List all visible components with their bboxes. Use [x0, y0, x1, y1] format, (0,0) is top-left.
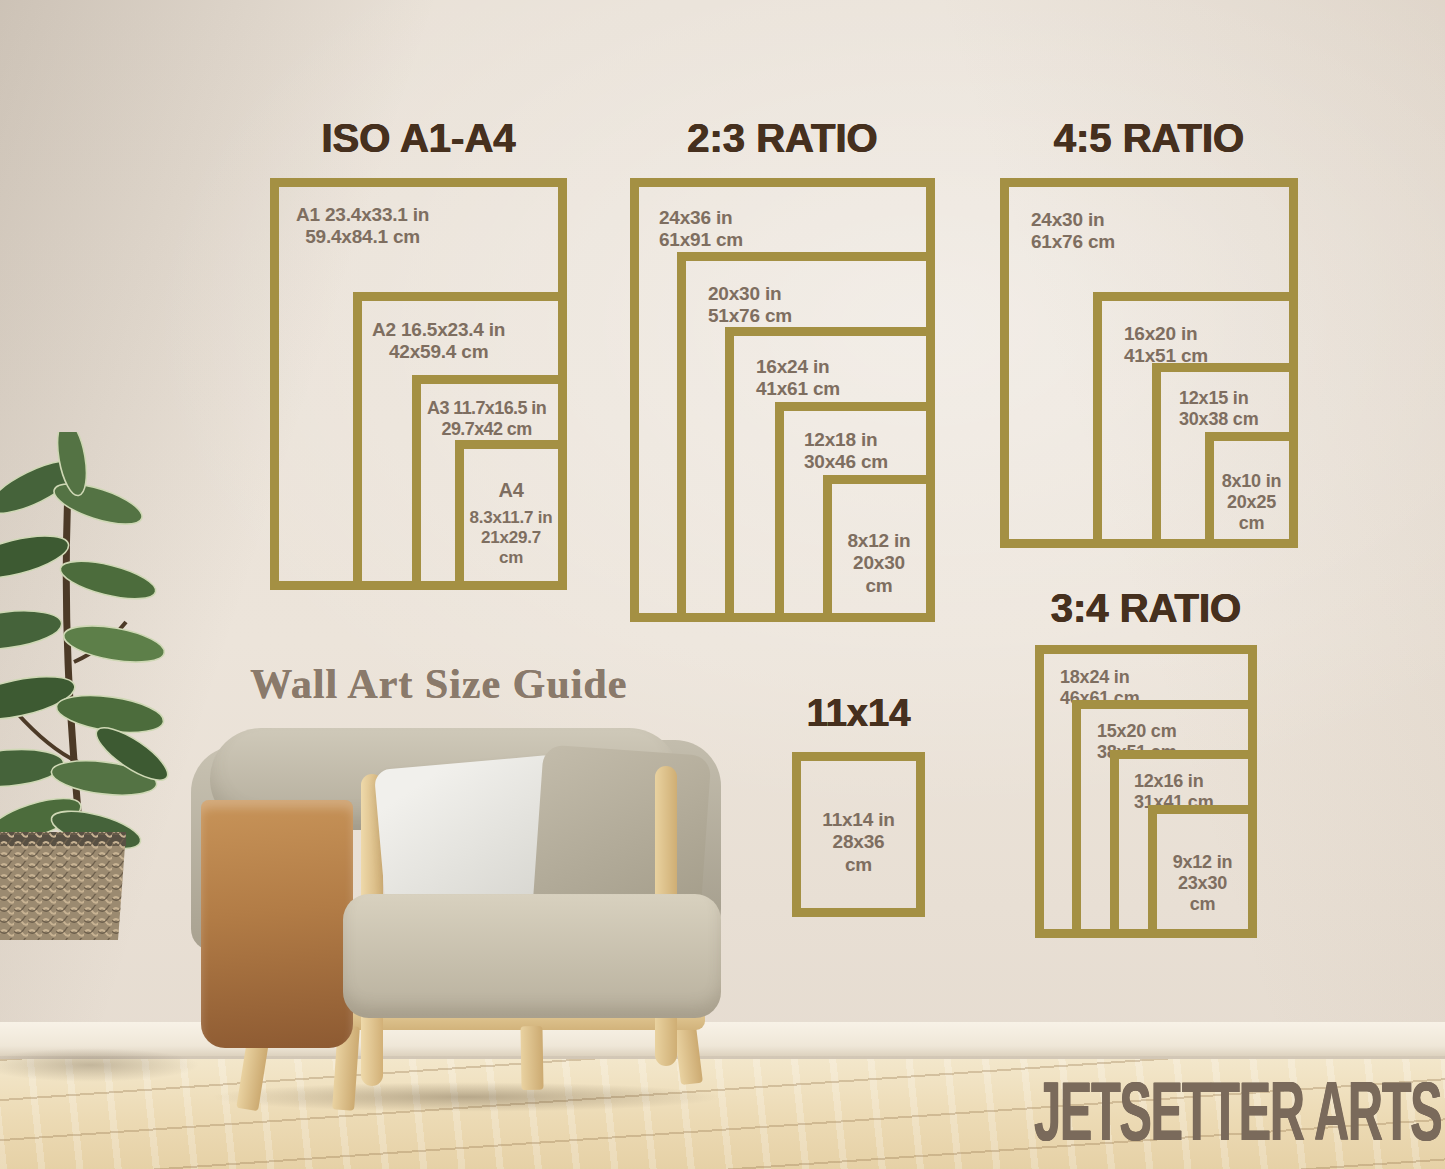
guide-title: Wall Art Size Guide — [250, 660, 627, 708]
frame-8x10: 8x10 in 20x25 cm — [1205, 432, 1298, 548]
frame-a4: A4 8.3x11.7 in 21x29.7 cm — [455, 440, 567, 590]
size-label-line: 12x16 in — [1134, 771, 1213, 792]
size-label-line: cm — [1157, 894, 1248, 915]
size-label-line: cm — [464, 548, 558, 568]
size-label: 8x12 in 20x30 cm — [832, 530, 926, 597]
size-label-line: 30x46 cm — [804, 451, 888, 473]
size-label-line: 8x10 in — [1214, 471, 1289, 492]
chair-leather-panel — [201, 800, 353, 1048]
size-label: 12x18 in 30x46 cm — [804, 429, 888, 474]
size-label: A1 23.4x33.1 in 59.4x84.1 cm — [296, 204, 429, 249]
size-label-line: 24x30 in — [1031, 209, 1115, 231]
wall-art-size-guide-photo: ISO A1-A4 A1 23.4x33.1 in 59.4x84.1 cm A… — [0, 0, 1445, 1169]
size-label-line: 8x12 in — [832, 530, 926, 552]
frame-9x12: 9x12 in 23x30 cm — [1148, 805, 1257, 938]
size-label-line: 61x76 cm — [1031, 231, 1115, 253]
section-title: 3:4 RATIO — [1035, 588, 1257, 628]
size-label-line: 30x38 cm — [1179, 409, 1258, 430]
size-label-line: 8.3x11.7 in — [464, 508, 558, 528]
frame-11x14: 11x14 in 28x36 cm — [792, 752, 925, 917]
size-label-line: A1 23.4x33.1 in — [296, 204, 429, 226]
section-title: ISO A1-A4 — [270, 118, 567, 158]
size-label: 16x20 in 41x51 cm — [1124, 323, 1208, 368]
size-label-line: 61x91 cm — [659, 229, 743, 251]
size-guide-section-11x14: 11x14 11x14 in 28x36 cm — [792, 752, 925, 917]
section-title: 2:3 RATIO — [630, 118, 935, 158]
size-label-line: 15x20 cm — [1097, 721, 1176, 742]
size-label-line: 12x15 in — [1179, 388, 1258, 409]
size-label-line: 16x24 in — [756, 356, 840, 378]
size-label-line: cm — [832, 575, 926, 597]
size-label-line: 42x59.4 cm — [372, 341, 505, 363]
size-label-line: 21x29.7 — [464, 528, 558, 548]
size-label-line: 41x61 cm — [756, 378, 840, 400]
chair-leg — [520, 1026, 543, 1090]
size-label: 24x30 in 61x76 cm — [1031, 209, 1115, 254]
size-label: 16x24 in 41x61 cm — [756, 356, 840, 401]
size-label: 12x15 in 30x38 cm — [1179, 388, 1258, 430]
size-label: 8x10 in 20x25 cm — [1214, 471, 1289, 535]
size-guide-section-iso: ISO A1-A4 A1 23.4x33.1 in 59.4x84.1 cm A… — [270, 178, 567, 590]
section-title: 4:5 RATIO — [1000, 118, 1298, 158]
size-guide-section-2-3: 2:3 RATIO 24x36 in 61x91 cm 20x30 in 51x… — [630, 178, 935, 622]
size-label: A4 8.3x11.7 in 21x29.7 cm — [464, 479, 558, 568]
size-guide-section-3-4: 3:4 RATIO 18x24 in 46x61 cm 15x20 cm 38x… — [1035, 645, 1257, 938]
size-label-line: 20x30 — [832, 552, 926, 574]
size-label-line: A2 16.5x23.4 in — [372, 319, 505, 341]
size-label: 20x30 in 51x76 cm — [708, 283, 792, 328]
size-label-line: 20x25 — [1214, 492, 1289, 513]
plant-shadow — [0, 1048, 200, 1082]
size-label-line: 9x12 in — [1157, 852, 1248, 873]
size-label-line: 12x18 in — [804, 429, 888, 451]
size-label-line: cm — [1214, 513, 1289, 534]
size-label: 11x14 in 28x36 cm — [801, 809, 916, 876]
size-label-line: A4 — [464, 479, 558, 503]
armchair — [185, 726, 735, 1116]
chair-seat-cushion — [343, 894, 721, 1018]
size-label: 9x12 in 23x30 cm — [1157, 852, 1248, 916]
size-label-line: 11x14 in — [801, 809, 916, 831]
size-label-line: 24x36 in — [659, 207, 743, 229]
size-label-line: cm — [801, 854, 916, 876]
size-label-line: 29.7x42 cm — [427, 419, 546, 440]
size-label-line: 18x24 in — [1060, 667, 1139, 688]
size-label-line: 20x30 in — [708, 283, 792, 305]
size-label-line: 59.4x84.1 cm — [296, 226, 429, 248]
size-label: A2 16.5x23.4 in 42x59.4 cm — [372, 319, 505, 364]
size-label-line: 16x20 in — [1124, 323, 1208, 345]
frame-8x12: 8x12 in 20x30 cm — [823, 475, 935, 622]
size-label-line: 23x30 — [1157, 873, 1248, 894]
size-label: A3 11.7x16.5 in 29.7x42 cm — [427, 398, 546, 440]
size-label-line: 28x36 — [801, 831, 916, 853]
size-label: 24x36 in 61x91 cm — [659, 207, 743, 252]
brand-name: JETSETTER ARTS — [1034, 1070, 1441, 1154]
section-title: 11x14 — [792, 694, 925, 732]
size-label-line: 51x76 cm — [708, 305, 792, 327]
size-label-line: A3 11.7x16.5 in — [427, 398, 546, 419]
chair-shadow — [209, 1082, 725, 1112]
potted-plant — [0, 432, 176, 952]
size-guide-section-4-5: 4:5 RATIO 24x30 in 61x76 cm 16x20 in 41x… — [1000, 178, 1298, 548]
